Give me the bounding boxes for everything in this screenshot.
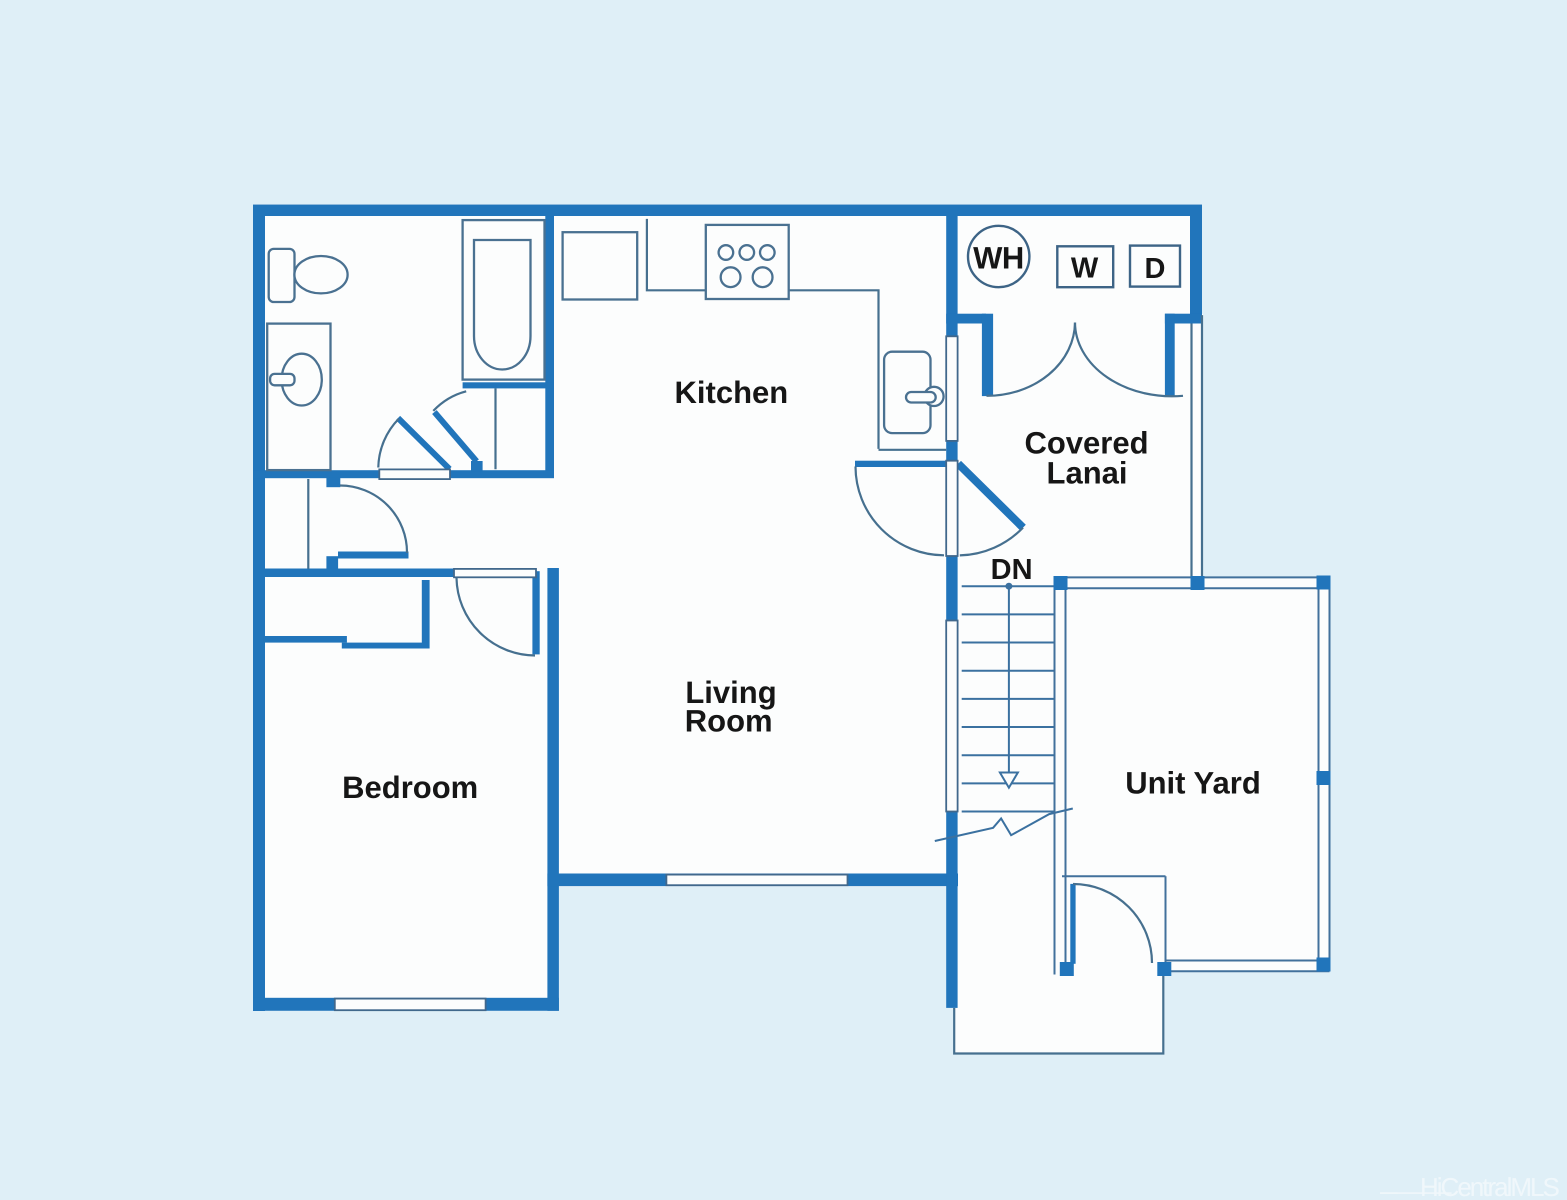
svg-text:Room: Room	[685, 704, 773, 739]
svg-text:Kitchen: Kitchen	[675, 375, 789, 410]
svg-text:Unit Yard: Unit Yard	[1125, 766, 1261, 801]
svg-text:W: W	[1071, 253, 1099, 285]
svg-text:Bedroom: Bedroom	[342, 770, 478, 805]
svg-text:Lanai: Lanai	[1047, 456, 1128, 491]
svg-text:D: D	[1145, 253, 1166, 285]
svg-text:HiCentralMLS: HiCentralMLS	[1420, 1172, 1559, 1200]
svg-text:WH: WH	[973, 241, 1024, 276]
svg-text:DN: DN	[991, 554, 1033, 586]
